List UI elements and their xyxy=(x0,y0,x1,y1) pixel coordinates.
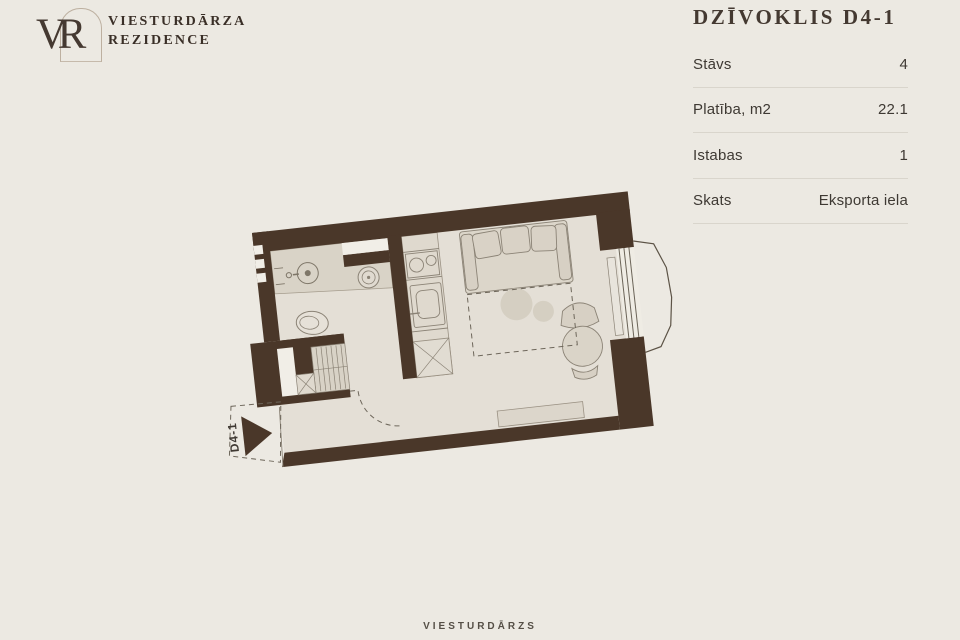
apartment-details: Stāvs 4 Platība, m2 22.1 Istabas 1 Skats… xyxy=(693,42,908,224)
brand-logo: VR VIESTURDĀRZA REZIDENCE xyxy=(36,5,366,77)
logo-line1: VIESTURDĀRZA xyxy=(108,13,246,32)
logo-monogram: VR xyxy=(36,12,86,58)
unit-label: D4-1 xyxy=(225,422,242,453)
detail-row-floor: Stāvs 4 xyxy=(693,42,908,88)
detail-label: Stāvs xyxy=(693,56,732,73)
detail-label: Skats xyxy=(693,192,732,209)
riser-box xyxy=(296,373,316,395)
duct-hatch xyxy=(311,343,350,392)
detail-row-area: Platība, m2 22.1 xyxy=(693,88,908,134)
kitchen-cabinet-icon xyxy=(413,338,453,378)
footer-brand: VIESTURDĀRZS xyxy=(0,621,960,632)
detail-value: 4 xyxy=(899,56,908,73)
page-title: DZĪVOKLIS D4-1 xyxy=(693,5,953,30)
detail-value: 22.1 xyxy=(878,101,908,118)
logo-wordmark: VIESTURDĀRZA REZIDENCE xyxy=(108,13,246,50)
detail-label: Platība, m2 xyxy=(693,101,771,118)
floor-plan: D4-1 xyxy=(215,182,695,492)
logo-line2: REZIDENCE xyxy=(108,32,246,51)
wall-right-top xyxy=(596,209,634,251)
detail-row-view: Skats Eksporta iela xyxy=(693,179,908,225)
detail-label: Istabas xyxy=(693,147,743,164)
detail-row-rooms: Istabas 1 xyxy=(693,133,908,179)
detail-value: 1 xyxy=(899,147,908,164)
detail-value: Eksporta iela xyxy=(819,192,908,209)
sofa xyxy=(459,220,573,294)
entrance-arrow-icon xyxy=(241,413,274,456)
